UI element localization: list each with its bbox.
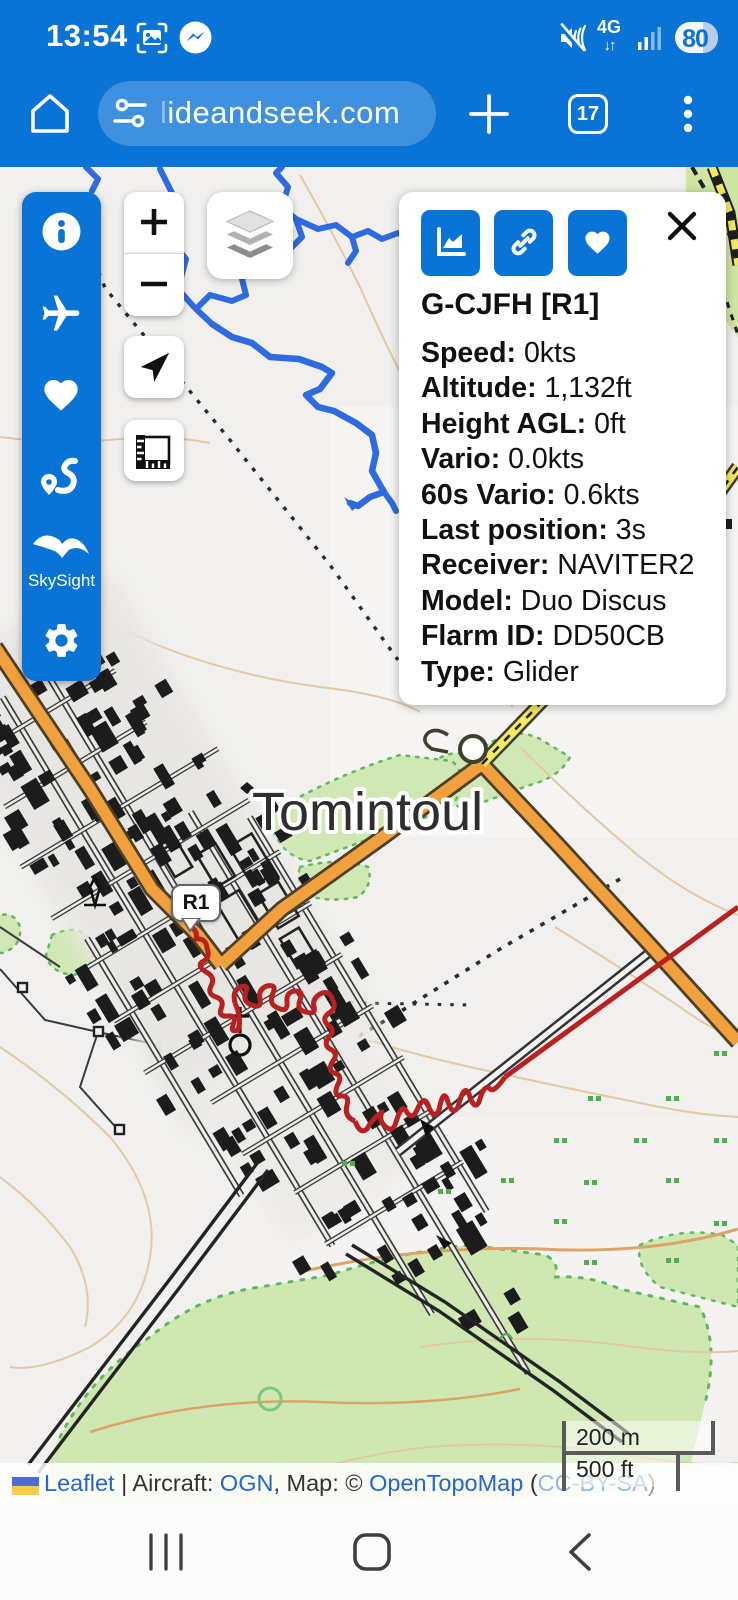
svg-text:Tomintoul: Tomintoul [252,782,483,842]
